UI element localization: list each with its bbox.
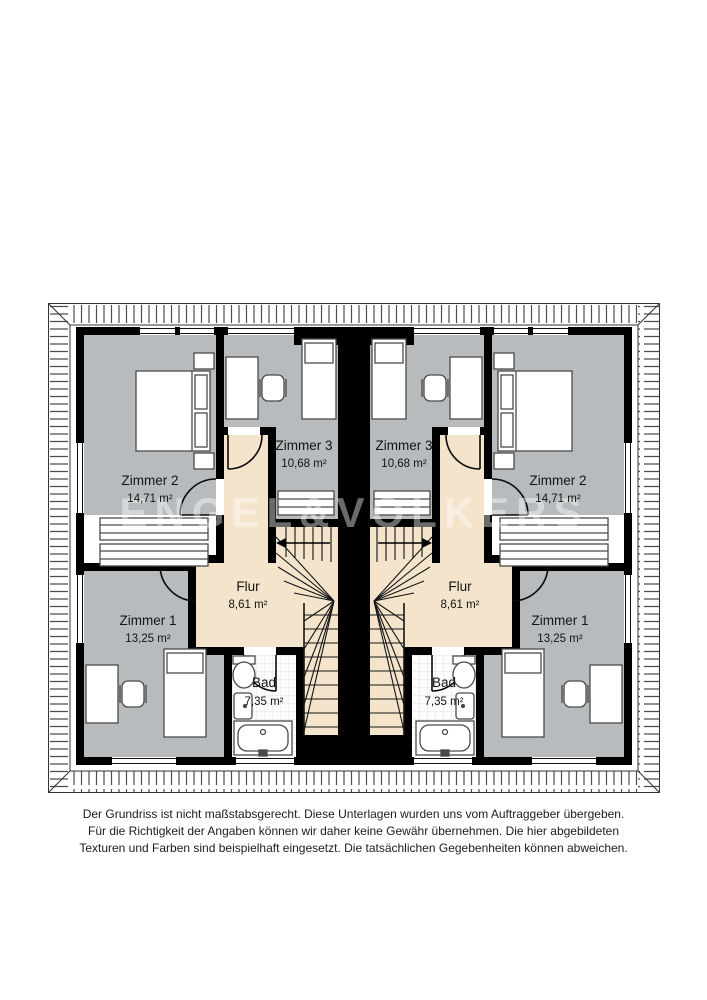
watermark: ENGEL&VÖLKERS — [119, 489, 588, 536]
room-label-zimmer2-right: Zimmer 2 — [530, 473, 587, 488]
floor-plan-svg: ENGEL&VÖLKERS Zimmer 2 14,71 m² Zimmer 3… — [48, 303, 660, 793]
page: ENGEL&VÖLKERS Zimmer 2 14,71 m² Zimmer 3… — [0, 0, 707, 1000]
room-label-flur-right: Flur — [448, 579, 472, 594]
right-unit — [354, 327, 632, 765]
room-label-flur-left: Flur — [236, 579, 260, 594]
room-label-zimmer1-left: Zimmer 1 — [120, 613, 177, 628]
disclaimer: Der Grundriss ist nicht maßstabsgerecht.… — [0, 806, 707, 857]
room-area-flur-left: 8,61 m² — [229, 599, 268, 611]
room-area-zimmer2-left: 14,71 m² — [127, 493, 173, 505]
room-area-bad-left: 7,35 m² — [245, 696, 284, 708]
room-area-zimmer1-right: 13,25 m² — [537, 633, 583, 645]
disclaimer-line-2: Für die Richtigkeit der Angaben können w… — [0, 823, 707, 840]
room-area-bad-right: 7,35 m² — [425, 696, 464, 708]
room-area-zimmer3-left: 10,68 m² — [281, 458, 327, 470]
room-label-zimmer3-right: Zimmer 3 — [376, 438, 433, 453]
room-area-zimmer2-right: 14,71 m² — [535, 493, 581, 505]
room-label-zimmer1-right: Zimmer 1 — [532, 613, 589, 628]
room-label-bad-right: Bad — [432, 675, 456, 690]
room-label-bad-left: Bad — [252, 675, 276, 690]
room-label-zimmer2-left: Zimmer 2 — [122, 473, 179, 488]
room-area-zimmer1-left: 13,25 m² — [125, 633, 171, 645]
disclaimer-line-3: Texturen und Farben sind beispielhaft ei… — [0, 840, 707, 857]
left-unit — [76, 327, 354, 765]
disclaimer-line-1: Der Grundriss ist nicht maßstabsgerecht.… — [0, 806, 707, 823]
room-area-zimmer3-right: 10,68 m² — [381, 458, 427, 470]
room-label-zimmer3-left: Zimmer 3 — [276, 438, 333, 453]
room-area-flur-right: 8,61 m² — [441, 599, 480, 611]
floor-plan: ENGEL&VÖLKERS Zimmer 2 14,71 m² Zimmer 3… — [48, 303, 660, 793]
